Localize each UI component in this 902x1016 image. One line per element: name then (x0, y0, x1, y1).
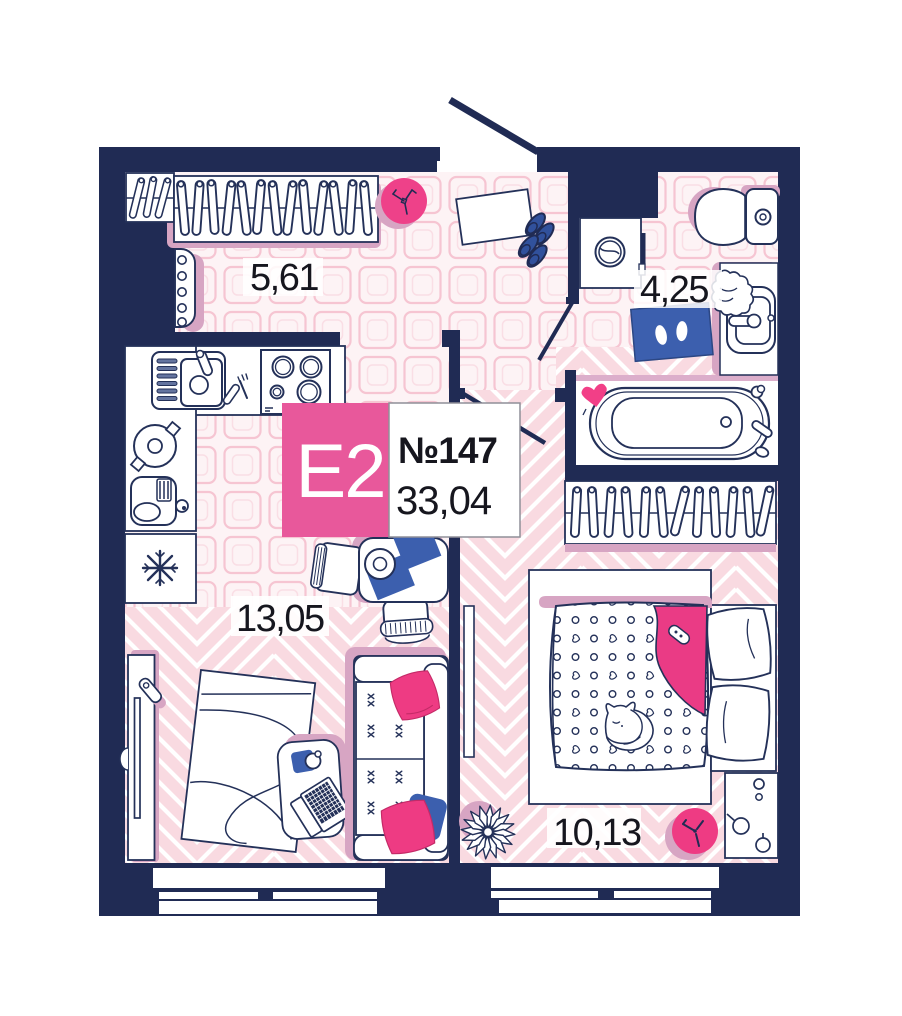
svg-text:Е2: Е2 (296, 429, 385, 514)
svg-text:13,05: 13,05 (236, 598, 324, 640)
svg-text:33,04: 33,04 (396, 479, 492, 523)
svg-text:5,61: 5,61 (250, 257, 318, 299)
svg-text:№147: №147 (398, 430, 497, 471)
svg-text:4,25: 4,25 (640, 269, 708, 311)
svg-text:10,13: 10,13 (553, 812, 641, 854)
